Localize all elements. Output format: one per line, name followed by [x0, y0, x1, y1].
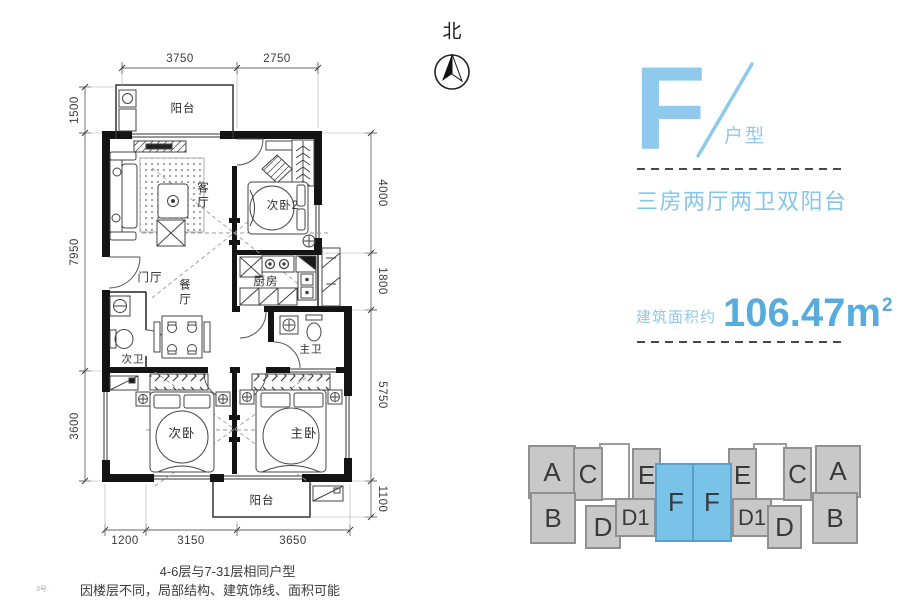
- closet-icon: [150, 374, 330, 390]
- coffee-table-icon: [158, 184, 188, 218]
- corner-fine-print: 3号.: [36, 584, 49, 594]
- cabinet-icon: [110, 376, 138, 390]
- room-label-bedroom3: 次卧: [168, 423, 195, 442]
- room-label-bath2: 次卫: [122, 352, 145, 367]
- floor-plan-drawing: [0, 0, 520, 600]
- tv-cabinet-icon: [134, 141, 186, 152]
- bath2-toilet-icon: [110, 330, 133, 349]
- room-label-bath-master: 主卫: [300, 342, 323, 357]
- kitchen-counter-icon: [240, 288, 297, 305]
- floor-note-line2: 因楼层不同，局部结构、建筑饰线、面积可能有所不同: [75, 580, 345, 600]
- building-unit-c: C: [783, 447, 812, 501]
- area-value: 106.47m: [723, 293, 881, 333]
- dim-bottom-1: 1200: [111, 535, 139, 547]
- sofa-icon: [110, 152, 137, 240]
- building-unit-a: A: [815, 445, 861, 498]
- area-row: 建筑面积约 106.47m 2: [636, 293, 892, 333]
- building-unit-b: B: [812, 492, 858, 544]
- room-label-balcony-top: 阳台: [171, 100, 196, 116]
- stove-icon: [262, 256, 294, 272]
- kitchen-corner-icon: [296, 256, 316, 272]
- dim-bottom-3: 3650: [279, 535, 307, 547]
- unit-description: 三房两厅两卫双阳台: [636, 184, 848, 216]
- building-unit-d: D: [767, 505, 802, 549]
- room-label-bedroom2: 次卧2: [267, 197, 299, 213]
- room-label-dining: 餐厅: [176, 279, 192, 308]
- plant-icon: [157, 220, 185, 246]
- building-unit-a: A: [528, 445, 576, 499]
- dim-bottom-2: 3150: [177, 535, 205, 547]
- compass-icon: [435, 54, 469, 89]
- dim-right-2: 1800: [376, 267, 388, 295]
- kitchen-sink-icon: [298, 272, 316, 300]
- building-unit-b: B: [530, 492, 576, 544]
- building-unit-d1: D1: [615, 498, 656, 537]
- dining-table-icon: [154, 316, 210, 358]
- master-bath-toilet-icon: [306, 315, 322, 341]
- dim-top-2: 2750: [263, 53, 291, 65]
- room-label-bedroom-master: 主卧: [290, 423, 317, 442]
- room-label-balcony-bottom: 阳台: [250, 492, 275, 508]
- ac-platform-icon: [322, 248, 340, 306]
- dim-top-1: 3750: [166, 53, 194, 65]
- floorplan-page: 北 阳台 客厅 次卧2 门厅 餐厅 厨房 次卫 主卫 次卧 主卧 阳台 3750…: [0, 0, 900, 600]
- building-core: [599, 443, 630, 500]
- master-bath-sink-icon: [280, 316, 298, 334]
- floor-note-line1: 4-6层与7-31层相同户型: [105, 561, 350, 580]
- building-core: [753, 443, 787, 500]
- room-label-living: 客厅: [194, 182, 210, 211]
- dim-right-3: 5750: [376, 381, 388, 409]
- room-label-kitchen: 厨房: [254, 273, 279, 289]
- bath2-sink-icon: [110, 296, 130, 316]
- building-unit-f: F: [692, 463, 732, 542]
- dim-left-3: 3600: [69, 412, 81, 440]
- dim-left-2: 7950: [69, 238, 81, 266]
- building-unit-e: E: [728, 448, 757, 502]
- dashed-divider-top: [637, 168, 843, 170]
- area-exponent: 2: [882, 295, 893, 317]
- area-label: 建筑面积约: [636, 306, 716, 333]
- compass-north-label: 北: [442, 17, 461, 44]
- desk-icon: [262, 141, 292, 183]
- dashed-divider-bottom: [637, 341, 843, 343]
- unit-type-suffix: 户型: [724, 121, 766, 148]
- wardrobe-icon: [292, 140, 314, 186]
- building-diagram: ACEFFECABDD1D1DB: [515, 442, 860, 552]
- building-unit-f: F: [655, 463, 697, 542]
- dim-right-4: 1100: [376, 486, 388, 513]
- room-label-foyer: 门厅: [138, 269, 163, 285]
- building-unit-c: C: [573, 447, 603, 501]
- dim-left-1: 1500: [69, 96, 81, 124]
- building-unit-d1: D1: [732, 498, 772, 537]
- dim-right-1: 4000: [376, 179, 388, 207]
